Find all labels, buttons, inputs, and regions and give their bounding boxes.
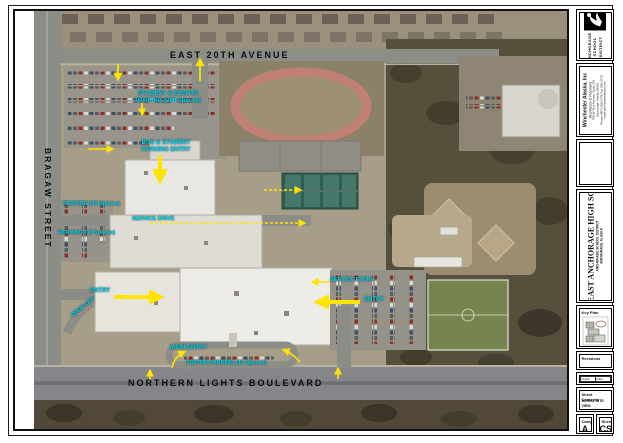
south-tree-band — [34, 400, 567, 429]
info-table: DrawnDate CheckedJob No. ScaleFile — [580, 376, 611, 383]
district-lockup: ANCHORAGE SCHOOL DISTRICT — [584, 12, 606, 59]
northeast-building — [459, 56, 567, 151]
label-entry-west: ENTRY — [90, 288, 110, 295]
key-plan-label: Key Plan — [582, 310, 599, 315]
label-entry-east: ENTRY — [364, 297, 384, 304]
category-box: Category A — [576, 414, 594, 434]
consultant-stamp-box — [576, 139, 614, 187]
label-student-parking: STUDENT & EVENTS PARKING (288 Spaces) — [133, 91, 203, 104]
label-main-entry: MAIN ENTRY — [170, 345, 207, 352]
label-service-drive: SERVICE DRIVE — [132, 216, 174, 222]
sheet-number-box: Sheet CS — [596, 414, 614, 434]
aerial-photo: EAST 20TH AVENUE BRAGAW STREET NORTHERN … — [34, 11, 567, 429]
title-block: ANCHORAGE SCHOOL DISTRICT Winchester Ala… — [576, 9, 614, 435]
site-map-frame: EAST 20TH AVENUE BRAGAW STREET NORTHERN … — [13, 9, 569, 431]
architect-firm: Winchester Alaska, Inc Architects & Plan… — [583, 67, 608, 133]
aerial-photo-art — [34, 11, 567, 429]
street-label-east-20th: EAST 20TH AVENUE — [170, 50, 290, 60]
sheet-contents-box: Sheet Contents AERIAL SITE VIEW SITE PLA… — [576, 387, 614, 412]
street-label-northern-lights: NORTHERN LIGHTS BOULEVARD — [128, 378, 323, 388]
key-plan-diagram — [582, 316, 609, 346]
revisions-box: Revisions — [576, 351, 614, 370]
label-service-entry: SERVICE ENTRY — [330, 277, 374, 283]
category-sheet-row: Category A Sheet CS — [576, 414, 614, 434]
practice-courts — [239, 141, 361, 171]
tennis-courts — [282, 173, 358, 209]
category-value: A — [580, 424, 591, 432]
label-parking-40: PARKING (40 Spaces) — [58, 230, 115, 236]
project-title-lockup: EAST ANCHORAGE HIGH SCHOOL ANCHORAGE SCH… — [586, 192, 603, 301]
sheet-contents-lines: AERIAL SITE VIEW SITE PLAN — [582, 399, 611, 410]
district-logo-box: ANCHORAGE SCHOOL DISTRICT — [576, 9, 614, 61]
label-visitor-parking: VISITOR PARKING (19 Spaces) — [186, 360, 267, 366]
project-title: EAST ANCHORAGE HIGH SCHOOL — [586, 192, 595, 301]
sheet-number-value: CS — [600, 424, 611, 432]
key-plan-box: Key Plan — [576, 305, 614, 349]
revisions-label: Revisions — [582, 356, 601, 361]
construction-area — [392, 215, 472, 267]
label-parking-30: PARKING (30 Spaces) — [63, 201, 120, 207]
label-bus-entry: BUS & STUDENT PARKING ENTRY — [138, 140, 194, 153]
project-title-box: EAST ANCHORAGE HIGH SCHOOL ANCHORAGE SCH… — [576, 189, 614, 303]
district-logo-icon — [584, 12, 606, 31]
district-name: ANCHORAGE SCHOOL DISTRICT — [587, 33, 603, 59]
soccer-field — [428, 280, 508, 350]
street-label-bragaw: BRAGAW STREET — [42, 148, 52, 249]
info-table-box: DrawnDate CheckedJob No. ScaleFile — [576, 372, 614, 385]
architect-firm-box: Winchester Alaska, Inc Architects & Plan… — [576, 63, 614, 137]
east-entry-drive — [337, 306, 351, 368]
